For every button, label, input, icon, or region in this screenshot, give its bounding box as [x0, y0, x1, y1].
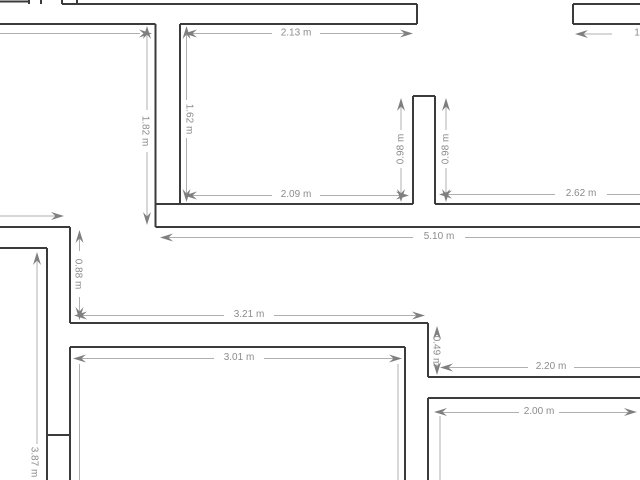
dimension-label: 2.00 m: [524, 406, 555, 417]
dimension-label: 1: [634, 28, 640, 39]
dimension-label: 1.82 m: [140, 116, 151, 147]
dimension-label: 2.09 m: [281, 189, 312, 200]
dimension-label: 2.13 m: [281, 28, 312, 39]
dimension-label: 1.62 m: [184, 104, 195, 135]
floor-plan-canvas: 2.13 m1.82 m1.62 m0.98 m0.98 m2.09 m2.62…: [0, 0, 640, 480]
dimension-label: 5.10 m: [424, 231, 455, 242]
dimension-label: 2.62 m: [566, 188, 597, 199]
dimension-label: 3.01 m: [224, 352, 255, 363]
dimension-label: 0.88 m: [73, 259, 84, 290]
dimension-label: 0.98 m: [441, 134, 452, 165]
dimension-label: 0.49 m: [431, 336, 442, 367]
dimension-label: 2.20 m: [536, 361, 567, 372]
dimension-label: 3.21 m: [234, 309, 265, 320]
floor-plan: 2.13 m1.82 m1.62 m0.98 m0.98 m2.09 m2.62…: [0, 0, 640, 480]
dimension-label: 3.87 m: [29, 447, 40, 478]
dimension-label: 0.98 m: [396, 134, 407, 165]
